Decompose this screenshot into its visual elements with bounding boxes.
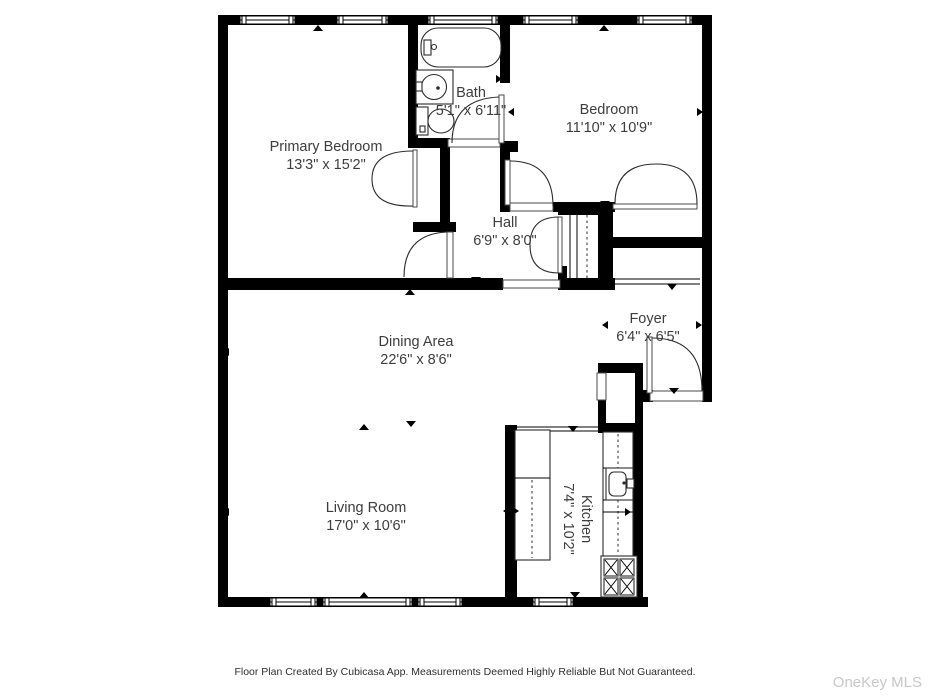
watermark-onekey-mls: OneKey MLS <box>833 674 922 691</box>
room-name: Kitchen <box>577 483 595 554</box>
room-label-primary-bedroom: Primary Bedroom 13'3" x 15'2" <box>270 138 383 174</box>
room-dims: 13'3" x 15'2" <box>270 156 383 174</box>
room-label-foyer: Foyer 6'4" x 6'5" <box>616 310 679 346</box>
room-label-living-room: Living Room 17'0" x 10'6" <box>326 499 407 535</box>
room-name: Bedroom <box>566 101 653 119</box>
room-label-bedroom: Bedroom 11'10" x 10'9" <box>566 101 653 137</box>
door-swing-icon <box>505 160 553 211</box>
room-name: Hall <box>473 214 536 232</box>
room-dims: 22'6" x 8'6" <box>379 351 454 369</box>
kitchen-sink-icon <box>606 468 634 500</box>
closet-rod-icon <box>570 215 587 278</box>
door-swing-icon <box>404 232 453 278</box>
room-dims: 5'1" x 6'11" <box>436 102 506 120</box>
room-dims: 7'4" x 10'2" <box>559 483 577 554</box>
room-label-dining-area: Dining Area 22'6" x 8'6" <box>379 333 454 369</box>
room-dims: 6'4" x 6'5" <box>616 328 679 346</box>
room-name: Living Room <box>326 499 407 517</box>
footer-disclaimer: Floor Plan Created By Cubicasa App. Meas… <box>0 666 930 678</box>
room-label-kitchen: Kitchen 7'4" x 10'2" <box>559 483 595 554</box>
bathtub-icon <box>421 28 501 67</box>
open-boundaries <box>517 279 700 431</box>
window-icon <box>240 16 295 24</box>
room-dims: 11'10" x 10'9" <box>566 119 653 137</box>
room-label-hall: Hall 6'9" x 8'0" <box>473 214 536 250</box>
window-icon <box>428 16 498 24</box>
room-name: Dining Area <box>379 333 454 351</box>
room-label-bath: Bath 5'1" x 6'11" <box>436 84 506 120</box>
floor-plan-page: Primary Bedroom 13'3" x 15'2" Bath 5'1" … <box>0 0 930 697</box>
window-icon <box>533 598 573 606</box>
room-dims: 17'0" x 10'6" <box>326 517 407 535</box>
room-name: Bath <box>436 84 506 102</box>
window-icon <box>637 16 692 24</box>
window-icon <box>418 598 462 606</box>
kitchen-counter <box>515 430 550 560</box>
closet-double-door-icon <box>613 164 697 209</box>
window-icon <box>323 598 412 606</box>
room-dims: 6'9" x 8'0" <box>473 232 536 250</box>
window-icon <box>523 16 578 24</box>
room-name: Primary Bedroom <box>270 138 383 156</box>
room-name: Foyer <box>616 310 679 328</box>
closet-opening <box>597 373 606 400</box>
stove-4-burner-icon <box>601 556 637 597</box>
hall-opening <box>503 280 560 288</box>
window-icon <box>270 598 317 606</box>
window-icon <box>337 16 388 24</box>
